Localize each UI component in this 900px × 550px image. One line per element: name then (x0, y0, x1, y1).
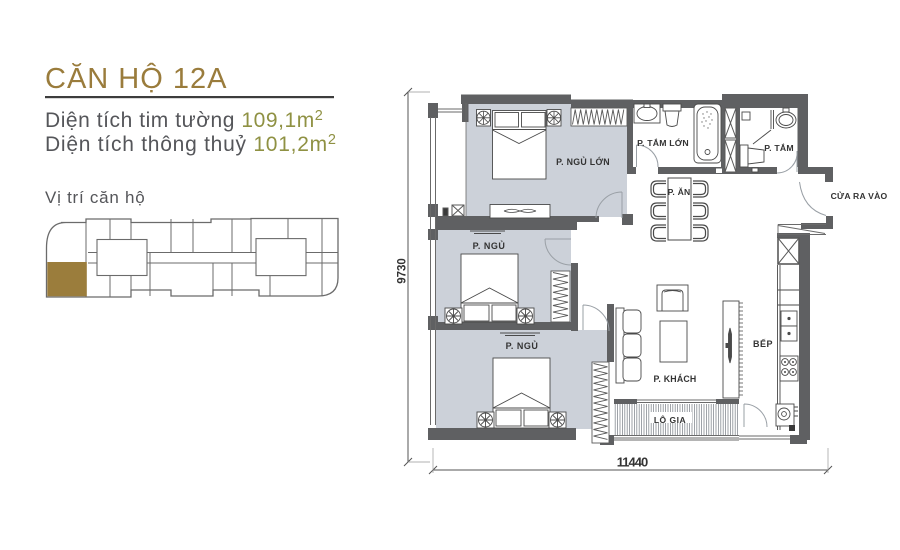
svg-text:BẾP: BẾP (753, 339, 773, 349)
svg-text:Diện tích thông thuỷ 101,2m2: Diện tích thông thuỷ 101,2m2 (45, 132, 337, 156)
svg-text:P. TẮM: P. TẮM (764, 143, 794, 153)
svg-text:9730: 9730 (397, 258, 409, 284)
svg-text:Vị trí căn hộ: Vị trí căn hộ (45, 188, 145, 207)
svg-text:P. NGỦ: P. NGỦ (506, 340, 539, 351)
svg-text:P. KHÁCH: P. KHÁCH (654, 374, 697, 384)
svg-text:P. TẮM LỚN: P. TẮM LỚN (637, 137, 689, 148)
svg-text:P. NGỦ LỚN: P. NGỦ LỚN (556, 156, 610, 167)
svg-text:Diện tích tim tường 109,1m2: Diện tích tim tường 109,1m2 (45, 108, 323, 132)
svg-text:P. NGỦ: P. NGỦ (473, 240, 506, 251)
svg-text:11440: 11440 (617, 455, 648, 470)
svg-text:LÔ GIA: LÔ GIA (654, 414, 686, 425)
svg-text:CỬA RA VÀO: CỬA RA VÀO (831, 190, 888, 201)
svg-text:CĂN HỘ 12A: CĂN HỘ 12A (45, 61, 227, 95)
svg-text:P. ĂN: P. ĂN (668, 187, 691, 197)
